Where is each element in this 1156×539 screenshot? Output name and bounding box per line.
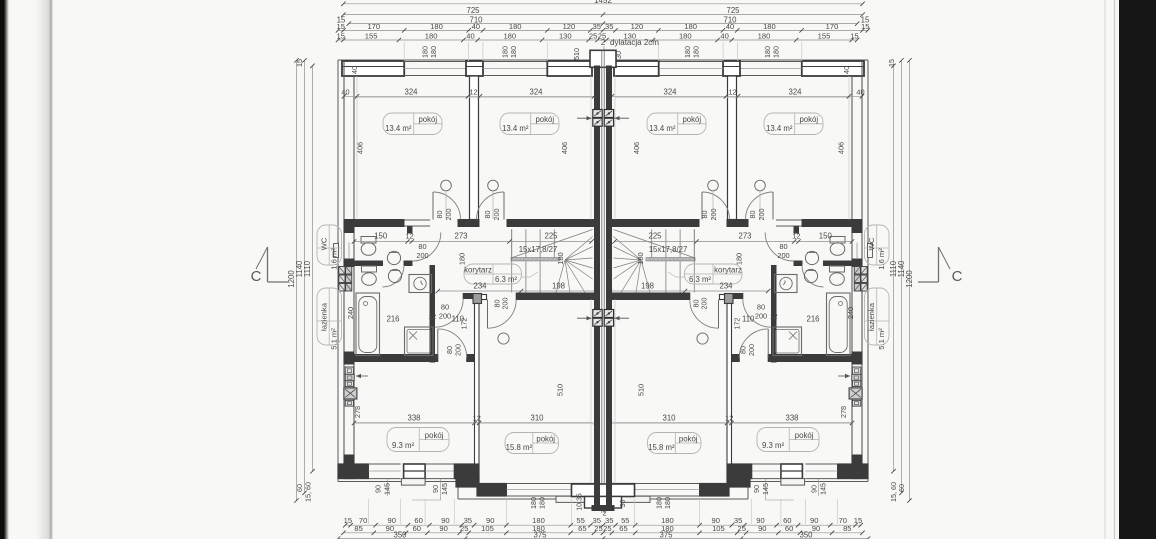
svg-text:150: 150 (819, 232, 833, 241)
svg-text:375: 375 (659, 530, 673, 539)
svg-text:510: 510 (572, 48, 581, 60)
svg-text:200: 200 (501, 298, 510, 310)
svg-text:15, 60: 15, 60 (304, 482, 313, 502)
svg-text:130: 130 (559, 32, 572, 41)
svg-text:40: 40 (350, 66, 359, 74)
svg-text:180: 180 (758, 32, 771, 41)
svg-text:180: 180 (684, 22, 697, 31)
svg-text:170: 170 (826, 22, 839, 31)
svg-text:200: 200 (444, 209, 453, 221)
svg-text:60: 60 (897, 484, 906, 492)
svg-text:172: 172 (735, 318, 742, 330)
svg-text:225: 225 (648, 232, 662, 241)
svg-text:180: 180 (692, 46, 701, 58)
svg-text:9.3 m²: 9.3 m² (392, 441, 414, 450)
svg-text:15: 15 (344, 516, 352, 525)
svg-text:15: 15 (336, 32, 344, 41)
svg-text:510: 510 (556, 384, 565, 396)
svg-text:40: 40 (472, 22, 480, 31)
svg-text:25: 25 (589, 32, 597, 41)
svg-text:12: 12 (469, 87, 477, 96)
svg-text:15: 15 (887, 59, 896, 67)
svg-text:180: 180 (763, 22, 776, 31)
svg-text:200: 200 (700, 298, 709, 310)
svg-text:225: 225 (544, 232, 558, 241)
svg-text:273: 273 (738, 232, 751, 241)
svg-text:6.3 m²: 6.3 m² (495, 275, 517, 284)
svg-text:pokój: pokój (799, 115, 818, 124)
svg-text:375: 375 (533, 530, 547, 539)
svg-text:145: 145 (383, 483, 392, 495)
svg-text:105: 105 (481, 524, 494, 533)
svg-text:406: 406 (560, 142, 569, 154)
svg-text:15x17,8/27: 15x17,8/27 (519, 245, 558, 254)
svg-text:180: 180 (429, 46, 438, 58)
svg-text:80: 80 (748, 211, 757, 219)
svg-text:1200: 1200 (905, 270, 914, 288)
svg-text:35: 35 (605, 22, 613, 31)
svg-text:406: 406 (837, 142, 846, 154)
svg-text:pokój: pokój (418, 115, 437, 124)
svg-text:pokój: pokój (679, 435, 698, 444)
svg-text:338: 338 (785, 414, 798, 423)
svg-text:40: 40 (466, 32, 474, 41)
svg-text:łazienka: łazienka (320, 302, 329, 331)
svg-text:12: 12 (728, 87, 736, 96)
svg-text:110: 110 (742, 315, 755, 324)
svg-text:13.4 m²: 13.4 m² (385, 124, 412, 133)
svg-text:korytarz: korytarz (714, 265, 742, 274)
svg-text:200: 200 (454, 344, 463, 356)
svg-text:85: 85 (843, 524, 851, 533)
svg-text:338: 338 (407, 414, 420, 423)
svg-text:278: 278 (353, 406, 362, 418)
svg-text:15: 15 (295, 59, 304, 67)
svg-text:15.8 m²: 15.8 m² (506, 443, 533, 452)
svg-text:1.6 m²: 1.6 m² (330, 248, 339, 270)
svg-text:80: 80 (441, 303, 449, 312)
svg-text:155: 155 (818, 32, 831, 41)
svg-text:25: 25 (603, 524, 611, 533)
svg-text:łazienka: łazienka (867, 302, 876, 331)
svg-text:180: 180 (458, 253, 467, 265)
svg-text:172: 172 (461, 318, 468, 330)
svg-text:65: 65 (578, 524, 586, 533)
svg-text:180: 180 (772, 46, 781, 58)
svg-text:180: 180 (655, 497, 664, 509)
svg-text:25: 25 (460, 524, 468, 533)
svg-text:273: 273 (454, 232, 467, 241)
svg-text:9.3 m²: 9.3 m² (762, 441, 784, 450)
svg-text:40: 40 (842, 66, 851, 74)
svg-text:12: 12 (792, 232, 800, 241)
svg-text:406: 406 (632, 142, 641, 154)
svg-text:30: 30 (620, 500, 627, 508)
svg-text:180: 180 (636, 252, 645, 264)
svg-text:25: 25 (594, 524, 602, 533)
svg-text:350: 350 (799, 530, 813, 539)
svg-text:180: 180 (735, 253, 744, 265)
svg-text:C: C (952, 268, 963, 285)
svg-text:155: 155 (365, 32, 378, 41)
svg-text:145: 145 (819, 483, 828, 495)
svg-text:90: 90 (439, 524, 447, 533)
svg-text:180: 180 (538, 497, 547, 509)
svg-text:310: 310 (662, 414, 676, 423)
svg-text:2: 2 (602, 509, 606, 518)
svg-text:90: 90 (431, 485, 440, 493)
svg-text:korytarz: korytarz (464, 265, 492, 274)
svg-text:180: 180 (430, 22, 443, 31)
svg-text:350: 350 (393, 530, 407, 539)
svg-text:198: 198 (552, 282, 565, 291)
svg-text:25: 25 (737, 524, 745, 533)
svg-text:WC: WC (320, 237, 329, 250)
svg-text:200: 200 (492, 209, 501, 221)
svg-text:150: 150 (374, 232, 388, 241)
svg-text:30: 30 (614, 51, 623, 59)
svg-text:15: 15 (854, 516, 862, 525)
svg-text:120: 120 (563, 22, 576, 31)
svg-text:90: 90 (812, 524, 820, 533)
svg-text:200: 200 (747, 344, 756, 356)
svg-text:216: 216 (386, 315, 399, 324)
svg-text:180: 180 (663, 497, 672, 509)
svg-text:85: 85 (354, 524, 362, 533)
svg-text:pokój: pokój (425, 431, 444, 440)
svg-text:324: 324 (663, 87, 677, 96)
svg-text:40: 40 (856, 87, 864, 96)
svg-text:200: 200 (757, 209, 766, 221)
svg-text:2: 2 (601, 38, 605, 47)
svg-text:15x17,8/27: 15x17,8/27 (649, 245, 688, 254)
svg-text:200: 200 (777, 251, 789, 260)
svg-text:12: 12 (725, 414, 733, 423)
svg-text:15: 15 (336, 22, 344, 31)
svg-text:234: 234 (473, 282, 487, 291)
svg-text:12: 12 (770, 314, 778, 321)
svg-text:pokój: pokój (535, 115, 554, 124)
svg-text:40: 40 (341, 87, 349, 96)
svg-text:80: 80 (418, 242, 426, 251)
svg-text:80: 80 (483, 211, 492, 219)
svg-text:120: 120 (631, 22, 644, 31)
svg-text:200: 200 (439, 312, 451, 321)
svg-text:pokój: pokój (682, 115, 701, 124)
svg-text:5.1 m²: 5.1 m² (877, 328, 886, 350)
svg-text:15.8 m²: 15.8 m² (648, 443, 675, 452)
svg-text:90: 90 (810, 485, 819, 493)
svg-text:406: 406 (356, 142, 365, 154)
svg-text:240: 240 (346, 307, 355, 319)
svg-text:105: 105 (712, 524, 725, 533)
svg-text:725: 725 (726, 6, 740, 15)
svg-text:90: 90 (758, 524, 766, 533)
svg-text:12: 12 (428, 314, 436, 321)
svg-text:234: 234 (719, 282, 733, 291)
svg-text:180: 180 (425, 32, 438, 41)
svg-text:90: 90 (374, 485, 383, 493)
svg-text:240: 240 (846, 307, 855, 319)
svg-text:6.3 m²: 6.3 m² (689, 275, 711, 284)
svg-text:13.4 m²: 13.4 m² (766, 124, 793, 133)
svg-text:dylatacja 2cm: dylatacja 2cm (610, 38, 659, 47)
svg-text:pokój: pokój (536, 435, 555, 444)
svg-text:324: 324 (529, 87, 543, 96)
svg-text:1110: 1110 (303, 260, 312, 277)
svg-text:60: 60 (785, 524, 793, 533)
svg-text:180: 180 (503, 32, 516, 41)
svg-text:40: 40 (720, 32, 728, 41)
svg-text:200: 200 (416, 251, 428, 260)
svg-text:80: 80 (779, 242, 787, 251)
svg-text:180: 180 (679, 32, 692, 41)
svg-text:216: 216 (806, 315, 819, 324)
svg-text:10,35: 10,35 (577, 493, 584, 511)
svg-text:15: 15 (850, 32, 858, 41)
svg-text:12: 12 (473, 414, 481, 423)
svg-text:80: 80 (435, 211, 444, 219)
svg-text:13.4 m²: 13.4 m² (502, 124, 529, 133)
svg-text:35: 35 (592, 22, 600, 31)
svg-text:80: 80 (700, 211, 709, 219)
svg-text:200: 200 (755, 312, 767, 321)
svg-text:1452: 1452 (594, 0, 612, 5)
svg-text:145: 145 (440, 483, 449, 495)
svg-text:65: 65 (619, 524, 627, 533)
svg-text:1.6 m²: 1.6 m² (877, 248, 886, 270)
svg-text:90: 90 (752, 485, 761, 493)
svg-text:180: 180 (509, 22, 522, 31)
svg-text:324: 324 (788, 87, 802, 96)
svg-text:C: C (251, 268, 262, 285)
svg-text:145: 145 (761, 483, 770, 495)
svg-text:725: 725 (466, 6, 480, 15)
svg-text:15: 15 (861, 22, 869, 31)
svg-text:200: 200 (709, 209, 718, 221)
svg-text:13.4 m²: 13.4 m² (649, 124, 676, 133)
svg-text:40: 40 (726, 22, 734, 31)
svg-text:WC: WC (867, 237, 876, 250)
svg-text:324: 324 (404, 87, 418, 96)
svg-text:60: 60 (413, 524, 421, 533)
svg-text:180: 180 (509, 46, 518, 58)
svg-text:198: 198 (641, 282, 654, 291)
svg-text:1140: 1140 (897, 260, 906, 277)
svg-text:510: 510 (637, 384, 646, 396)
svg-text:1110: 1110 (889, 260, 898, 277)
svg-text:310: 310 (530, 414, 544, 423)
svg-text:12: 12 (405, 232, 413, 241)
svg-text:180: 180 (556, 252, 565, 264)
svg-text:170: 170 (367, 22, 380, 31)
svg-text:278: 278 (839, 406, 848, 418)
svg-text:80: 80 (757, 303, 765, 312)
svg-text:5.1 m²: 5.1 m² (330, 328, 339, 350)
svg-text:pokój: pokój (795, 431, 814, 440)
svg-text:15, 60: 15, 60 (889, 482, 898, 502)
